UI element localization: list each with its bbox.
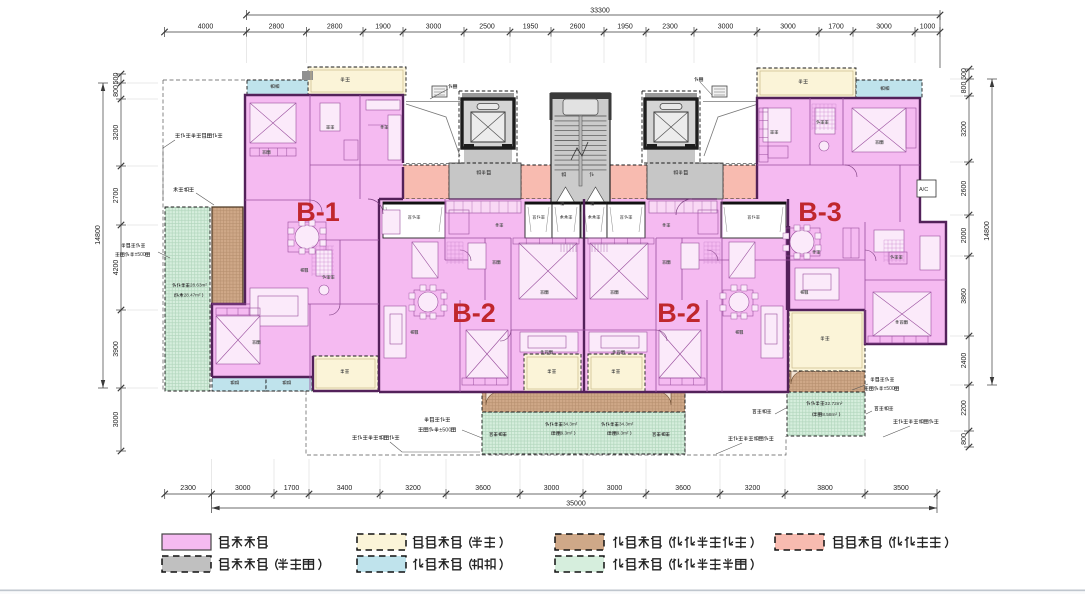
svg-text:3000: 3000 [426, 24, 442, 31]
svg-text:32.72m²: 32.72m² [825, 401, 843, 407]
svg-text:3600: 3600 [675, 485, 691, 492]
svg-text:3800: 3800 [817, 485, 833, 492]
svg-text:28.47m²: 28.47m² [184, 293, 201, 298]
svg-text:3000: 3000 [718, 24, 734, 31]
svg-text:33300: 33300 [590, 8, 610, 15]
svg-text:35000: 35000 [566, 501, 586, 508]
svg-text:A/C: A/C [919, 187, 928, 193]
svg-text:2400: 2400 [961, 353, 968, 369]
svg-text:3000: 3000 [607, 485, 623, 492]
svg-text:2800: 2800 [269, 24, 285, 31]
svg-text:1700: 1700 [284, 485, 300, 492]
svg-text:2000: 2000 [961, 228, 968, 244]
svg-text:B-2: B-2 [657, 298, 701, 328]
svg-text:B-2: B-2 [452, 298, 496, 328]
svg-text:2300: 2300 [662, 24, 678, 31]
svg-text:1950: 1950 [523, 24, 539, 31]
svg-text:3600: 3600 [475, 485, 491, 492]
svg-text:2200: 2200 [961, 400, 968, 416]
svg-text:2700: 2700 [113, 188, 120, 204]
svg-text:±500: ±500 [439, 427, 451, 433]
svg-text:34.3m²: 34.3m² [619, 422, 634, 427]
svg-text:2500: 2500 [479, 24, 495, 31]
svg-text:9.3m²: 9.3m² [561, 431, 573, 436]
svg-text:3200: 3200 [113, 125, 120, 141]
svg-text:3200: 3200 [745, 485, 761, 492]
svg-text:3500: 3500 [893, 485, 909, 492]
svg-text:1900: 1900 [375, 24, 391, 31]
svg-text:4000: 4000 [198, 24, 214, 31]
svg-text:2600: 2600 [570, 24, 586, 31]
svg-text:9.3m²: 9.3m² [617, 431, 629, 436]
svg-text:3200: 3200 [405, 485, 421, 492]
svg-text:±500: ±500 [884, 386, 895, 392]
svg-text:28.63m²: 28.63m² [190, 283, 207, 288]
svg-text:800: 800 [961, 433, 968, 445]
svg-text:3400: 3400 [337, 485, 353, 492]
svg-text:8.58m²: 8.58m² [822, 412, 837, 418]
svg-text:2800: 2800 [327, 24, 343, 31]
svg-text:3000: 3000 [235, 485, 251, 492]
svg-text:3860: 3860 [961, 288, 968, 304]
svg-text:14800: 14800 [95, 225, 102, 245]
svg-text:500: 500 [113, 73, 120, 85]
svg-text:3000: 3000 [780, 24, 796, 31]
svg-text:B-1: B-1 [296, 197, 340, 227]
svg-text:1000: 1000 [920, 24, 936, 31]
svg-text:1950: 1950 [617, 24, 633, 31]
svg-text:3000: 3000 [876, 24, 892, 31]
svg-text:34.3m²: 34.3m² [563, 422, 578, 427]
svg-text:800: 800 [113, 85, 120, 97]
svg-text:3000: 3000 [113, 412, 120, 428]
svg-text:3900: 3900 [113, 341, 120, 357]
svg-text:B-3: B-3 [798, 197, 842, 227]
svg-text:800: 800 [961, 82, 968, 94]
svg-text:3200: 3200 [961, 121, 968, 137]
svg-text:4200: 4200 [113, 260, 120, 276]
svg-text:2600: 2600 [961, 181, 968, 197]
svg-text:500: 500 [961, 68, 968, 80]
svg-text:±500: ±500 [135, 252, 146, 258]
svg-text:14800: 14800 [984, 221, 991, 241]
svg-text:1700: 1700 [828, 24, 844, 31]
svg-text:2300: 2300 [180, 485, 196, 492]
svg-text:3000: 3000 [544, 485, 560, 492]
